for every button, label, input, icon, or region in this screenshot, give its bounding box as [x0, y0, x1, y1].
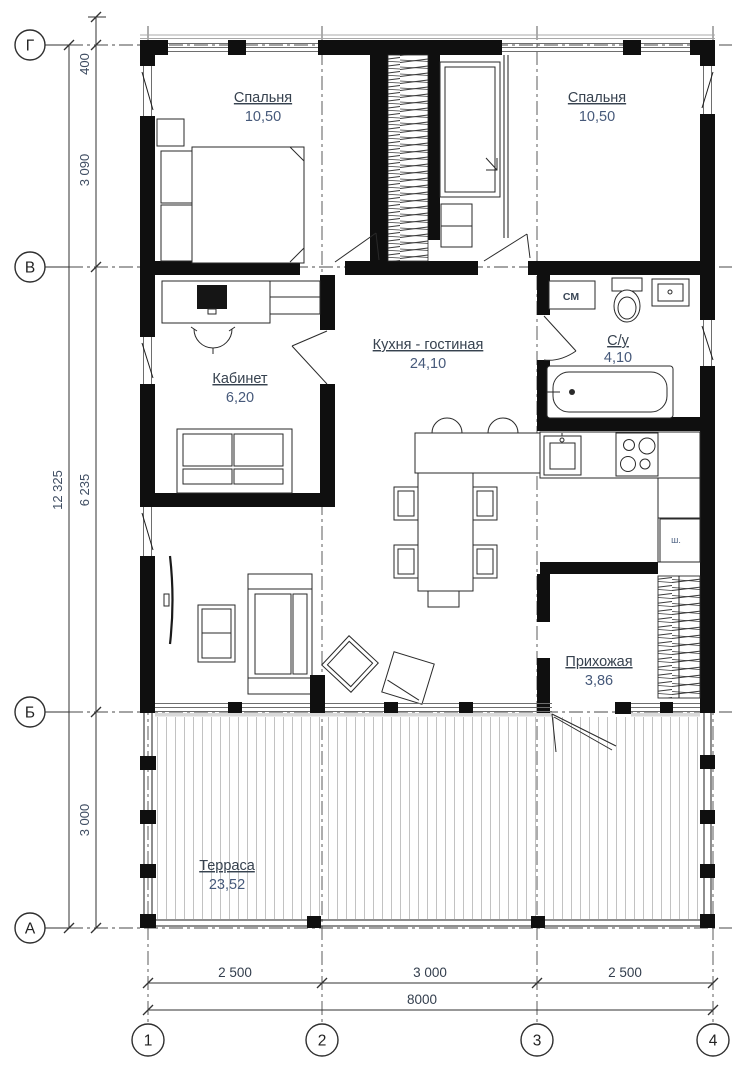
room-label-bathroom: С/у: [607, 333, 630, 349]
room-area-kitchen-living: 24,10: [410, 356, 446, 372]
kitchen-sink-icon: [544, 433, 581, 475]
bathroom-sink-icon: [652, 279, 689, 306]
pouf: [382, 652, 434, 704]
axis-col-3: 3: [533, 1033, 542, 1050]
axis-bubbles-bottom: [132, 1024, 729, 1056]
dim-horizontal-seg-3: 2 500: [608, 965, 642, 980]
toilet-icon: [612, 278, 642, 322]
dim-vertical-total: 12 325: [50, 470, 65, 510]
dim-horizontal-seg-1: 2 500: [218, 965, 252, 980]
room-area-office: 6,20: [226, 390, 254, 406]
tv-icon: [164, 556, 173, 644]
axis-col-2: 2: [318, 1033, 327, 1050]
room-area-bedroom-left: 10,50: [245, 109, 281, 125]
dim-vertical-seg-6235: 6 235: [77, 474, 92, 507]
room-label-bedroom-left: Спальня: [234, 90, 292, 106]
floor-plan-canvas: 12 325 400 3 090 6 235 3 000 2 500 3 000…: [0, 0, 738, 1080]
dim-vertical-seg-400: 400: [77, 53, 92, 75]
room-label-office: Кабинет: [212, 371, 268, 387]
dining-table: [394, 473, 497, 607]
axis-row-a: А: [25, 921, 36, 938]
room-label-hallway: Прихожая: [565, 654, 632, 670]
single-bed: [440, 62, 500, 247]
dimension-lines-left: [64, 12, 106, 933]
nook-partition: [504, 55, 508, 238]
dim-horizontal-seg-2: 3 000: [413, 965, 447, 980]
room-label-kitchen-living: Кухня - гостиная: [373, 337, 484, 353]
stove-icon: [616, 433, 658, 476]
office-desk: [162, 281, 320, 323]
hallway-wardrobe-hatch: [658, 576, 700, 698]
dim-vertical-seg-3000: 3 000: [77, 804, 92, 837]
axis-col-4: 4: [709, 1033, 718, 1050]
bar-stool-icon: [432, 418, 462, 433]
room-area-terrace: 23,52: [209, 877, 245, 893]
dim-horizontal-total: 8000: [407, 992, 437, 1007]
room-label-terrace: Терраса: [199, 858, 256, 874]
terrace-deck: [140, 713, 715, 928]
axis-col-1: 1: [144, 1033, 153, 1050]
closet-hatch: [388, 55, 428, 261]
window-bedroom-left-icon: [140, 66, 155, 116]
double-bed: [157, 119, 304, 263]
office-sofa: [177, 429, 292, 493]
nook-door: [484, 234, 530, 261]
kitchen-island: [415, 418, 540, 473]
axis-row-g: Г: [26, 38, 35, 55]
armchair: [198, 605, 235, 662]
axis-row-b: Б: [25, 705, 35, 722]
axis-row-v: В: [25, 260, 35, 277]
window-office-icon: [140, 337, 155, 384]
window-bedroom-right-icon: [700, 66, 715, 114]
window-bathroom-icon: [700, 320, 715, 366]
living-sofa: [248, 574, 312, 694]
bar-stool-icon: [488, 418, 518, 433]
dim-vertical-seg-3090: 3 090: [77, 154, 92, 187]
office-door-gap: [319, 330, 336, 384]
room-area-hallway: 3,86: [585, 673, 613, 689]
room-area-bedroom-right: 10,50: [579, 109, 615, 125]
window-living-icon: [140, 507, 155, 556]
bathroom-door: [544, 316, 576, 360]
washing-machine-label: СМ: [563, 291, 579, 303]
floor-plan-drawing: 12 325 400 3 090 6 235 3 000 2 500 3 000…: [0, 0, 738, 1080]
room-label-bedroom-right: Спальня: [568, 90, 626, 106]
office-chair: [191, 327, 235, 354]
roof-edge-lines: [140, 35, 715, 39]
wardrobe-label: ш.: [671, 535, 681, 545]
room-area-bathroom: 4,10: [604, 350, 632, 366]
pouf: [322, 636, 379, 693]
bathtub-icon: [547, 366, 673, 418]
monitor-icon: [197, 285, 227, 309]
